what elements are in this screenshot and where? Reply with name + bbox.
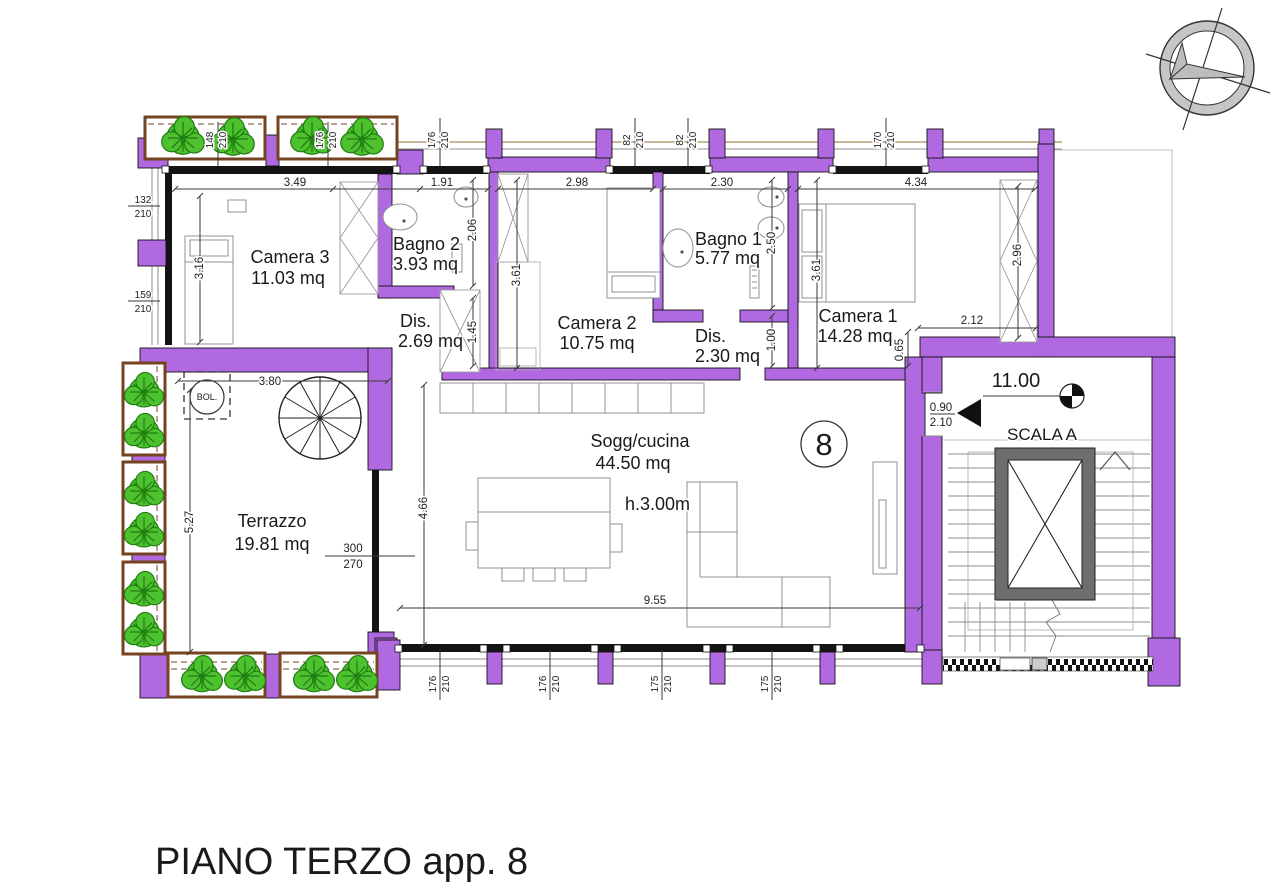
dim-212: 2.12 [961, 315, 983, 327]
win-bot-0-w: 176 [428, 675, 439, 692]
win-bot-3-h: 210 [773, 675, 784, 692]
apartment-number: 8 [815, 427, 832, 462]
scala-name: SCALA A [1007, 425, 1078, 444]
dim-298: 2.98 [566, 177, 588, 189]
dim-527: 5.27 [184, 511, 196, 533]
terrace-door-w: 300 [343, 543, 362, 555]
win-left-0-h: 210 [135, 209, 152, 220]
bagno2-area: 3.93 mq [393, 254, 458, 274]
dim-466: 4.66 [418, 497, 430, 519]
entrance-door-h: 2.10 [930, 417, 952, 429]
apartment-badge: 8 [801, 421, 847, 467]
win-top-3-w: 82 [622, 134, 633, 146]
win-left-0-w: 132 [135, 195, 152, 206]
dining-table [466, 478, 622, 581]
camera1-name: Camera 1 [818, 306, 897, 326]
dis1-area: 2.69 mq [398, 331, 463, 351]
bagno2-name: Bagno 2 [393, 234, 460, 254]
camera1-bed [799, 204, 915, 302]
dim-206: 2.06 [467, 219, 479, 241]
boiler: BOL. [184, 372, 230, 419]
win-top-3-h: 210 [635, 131, 646, 148]
dim-250: 2.50 [766, 232, 778, 254]
win-top-4-h: 210 [688, 131, 699, 148]
win-top-5-w: 170 [873, 131, 884, 148]
dim-191: 1.91 [431, 177, 453, 189]
floor-plan-drawing: BOL. [0, 0, 1280, 896]
stairwell [942, 440, 1153, 671]
sofa [687, 482, 830, 627]
sogg-height: h.3.00m [625, 494, 690, 514]
dim-955: 9.55 [644, 595, 666, 607]
win-bot-1-h: 210 [551, 675, 562, 692]
win-top-5-h: 210 [886, 131, 897, 148]
scala-level: 11.00 [992, 370, 1041, 392]
sogg-area: 44.50 mq [595, 453, 670, 473]
win-bot-3-w: 175 [760, 675, 771, 692]
win-top-1-w: 176 [315, 131, 326, 148]
win-top-2-h: 210 [440, 131, 451, 148]
floor-plan-page: BOL. [0, 0, 1280, 896]
camera1-area: 14.28 mq [817, 326, 892, 346]
win-top-1-h: 210 [328, 131, 339, 148]
camera3-area: 11.03 mq [251, 268, 325, 288]
terrazzo-name: Terrazzo [237, 511, 306, 531]
dim-434: 4.34 [905, 177, 928, 189]
camera2-area: 10.75 mq [559, 333, 634, 353]
bagno1-area: 5.77 mq [695, 248, 760, 268]
win-left-1-h: 210 [135, 304, 152, 315]
terrazzo-area: 19.81 mq [234, 534, 309, 554]
dim-349: 3.49 [284, 177, 306, 189]
sideboard-cabinet [873, 462, 897, 574]
dim-145: 1.45 [467, 321, 479, 343]
entrance-door-w: 0.90 [930, 402, 952, 414]
camera2-name: Camera 2 [557, 313, 636, 333]
dis2-name: Dis. [695, 326, 726, 346]
dim-361b: 3.61 [811, 259, 823, 281]
win-left-1-w: 159 [135, 290, 152, 301]
dim-361a: 3.61 [511, 264, 523, 286]
dim-100: 1.00 [766, 329, 778, 351]
dim-316: 3.16 [194, 257, 206, 279]
win-top-2-w: 176 [427, 131, 438, 148]
terrace-door-h: 270 [343, 559, 362, 571]
sogg-name: Sogg/cucina [590, 431, 690, 451]
camera3-name: Camera 3 [250, 247, 329, 267]
win-bot-1-w: 176 [538, 675, 549, 692]
dim-230: 2.30 [711, 177, 733, 189]
spiral-staircase [279, 377, 361, 459]
bagno1-name: Bagno 1 [695, 229, 762, 249]
win-bot-2-w: 175 [650, 675, 661, 692]
north-arrow-icon [1146, 8, 1270, 130]
dis2-area: 2.30 mq [695, 346, 760, 366]
win-bot-2-h: 210 [663, 675, 674, 692]
dim-380: 3.80 [259, 376, 281, 388]
win-bot-0-h: 210 [441, 675, 452, 692]
boiler-label: BOL. [197, 392, 218, 402]
page-title: PIANO TERZO app. 8 [155, 841, 528, 883]
win-top-4-w: 82 [675, 134, 686, 146]
win-top-0-h: 210 [218, 131, 229, 148]
kitchen-counter [440, 383, 704, 413]
dim-296: 2.96 [1012, 244, 1024, 266]
dis1-name: Dis. [400, 311, 431, 331]
win-top-0-w: 148 [205, 131, 216, 148]
dim-065: 0.65 [894, 339, 906, 361]
